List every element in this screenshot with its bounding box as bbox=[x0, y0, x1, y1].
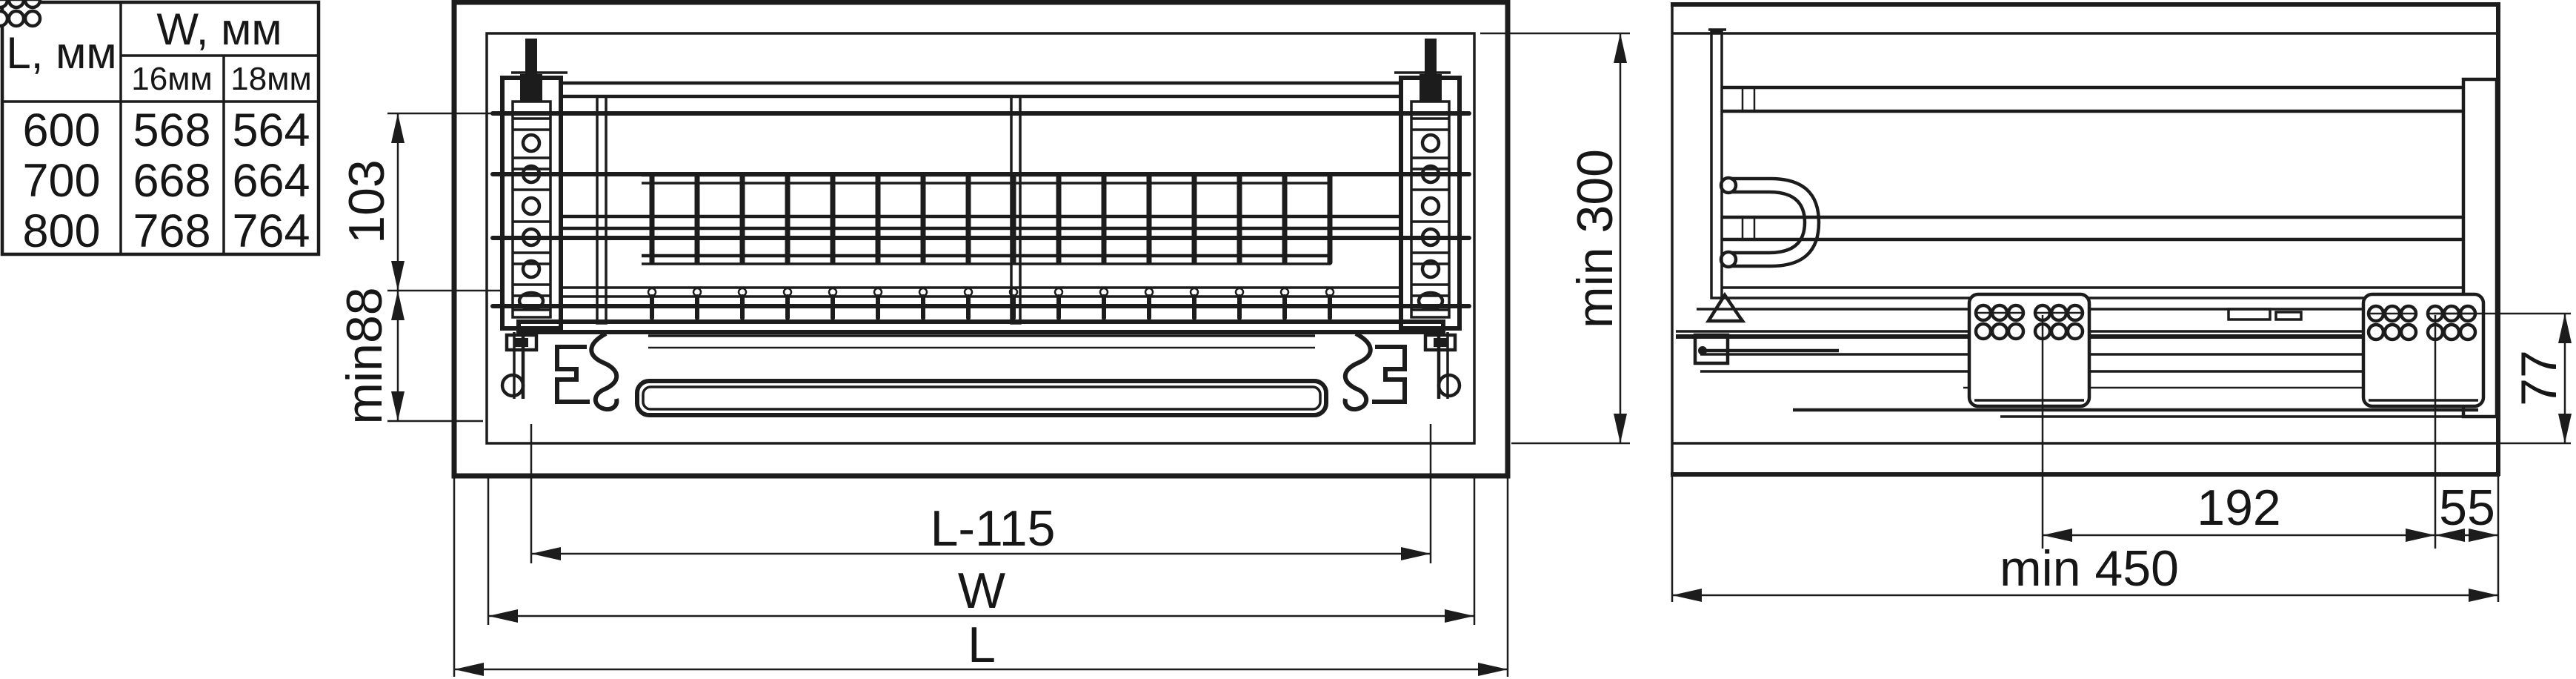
cell-w16-668: 668 bbox=[133, 155, 210, 207]
dim-label-l: L bbox=[968, 617, 996, 673]
screw-hole-cluster bbox=[0, 0, 40, 26]
wire-loop-dots bbox=[648, 288, 1334, 296]
cell-l-700: 700 bbox=[22, 155, 100, 207]
drip-tray bbox=[637, 381, 1326, 415]
mounting-plate-left bbox=[1969, 294, 2089, 406]
technical-drawing: L, мм W, мм 16мм 18мм 600 568 564 700 66… bbox=[0, 0, 2576, 679]
left-slide-foot bbox=[502, 332, 616, 409]
table-row: 700 668 664 bbox=[22, 155, 310, 207]
cell-w16-568: 568 bbox=[133, 105, 210, 156]
table-row: 600 568 564 bbox=[22, 105, 310, 156]
drawing-page: L, мм W, мм 16мм 18мм 600 568 564 700 66… bbox=[0, 0, 2576, 679]
mounting-plate-right bbox=[2363, 294, 2483, 406]
dim-label-min450: min 450 bbox=[2000, 540, 2179, 597]
table-subheader-16mm: 16мм bbox=[131, 61, 212, 97]
dim-label-min300: min 300 bbox=[1567, 149, 1623, 328]
spec-table: L, мм W, мм 16мм 18мм 600 568 564 700 66… bbox=[2, 2, 319, 257]
cell-w18-664: 664 bbox=[232, 155, 310, 207]
cell-l-800: 800 bbox=[22, 205, 100, 257]
dim-label-55: 55 bbox=[2439, 480, 2495, 536]
dim-label-77: 77 bbox=[2511, 350, 2567, 406]
dim-label-192: 192 bbox=[2197, 480, 2280, 536]
cell-w16-768: 768 bbox=[133, 205, 210, 257]
dim-label-l115: L-115 bbox=[931, 500, 1056, 557]
table-header-w: W, мм bbox=[156, 4, 282, 54]
plate-divider-wires bbox=[652, 176, 1330, 262]
left-mounting-rail bbox=[502, 39, 568, 328]
u-tube-wire bbox=[1721, 178, 1819, 267]
front-view: 103 min88 min 300 L-115 W L bbox=[336, 2, 1630, 677]
cell-w18-564: 564 bbox=[232, 105, 310, 156]
table-header-l: L, мм bbox=[6, 28, 116, 78]
spring-hook bbox=[591, 334, 616, 409]
dim-label-w: W bbox=[958, 563, 1005, 619]
dim-label-103: 103 bbox=[339, 159, 395, 243]
table-row: 800 768 764 bbox=[22, 205, 310, 257]
wire-basket bbox=[493, 83, 1469, 332]
table-subheader-18mm: 18мм bbox=[230, 61, 311, 97]
cell-w18-764: 764 bbox=[232, 205, 310, 257]
cell-l-600: 600 bbox=[22, 105, 100, 156]
dim-label-min88: min88 bbox=[336, 287, 393, 424]
